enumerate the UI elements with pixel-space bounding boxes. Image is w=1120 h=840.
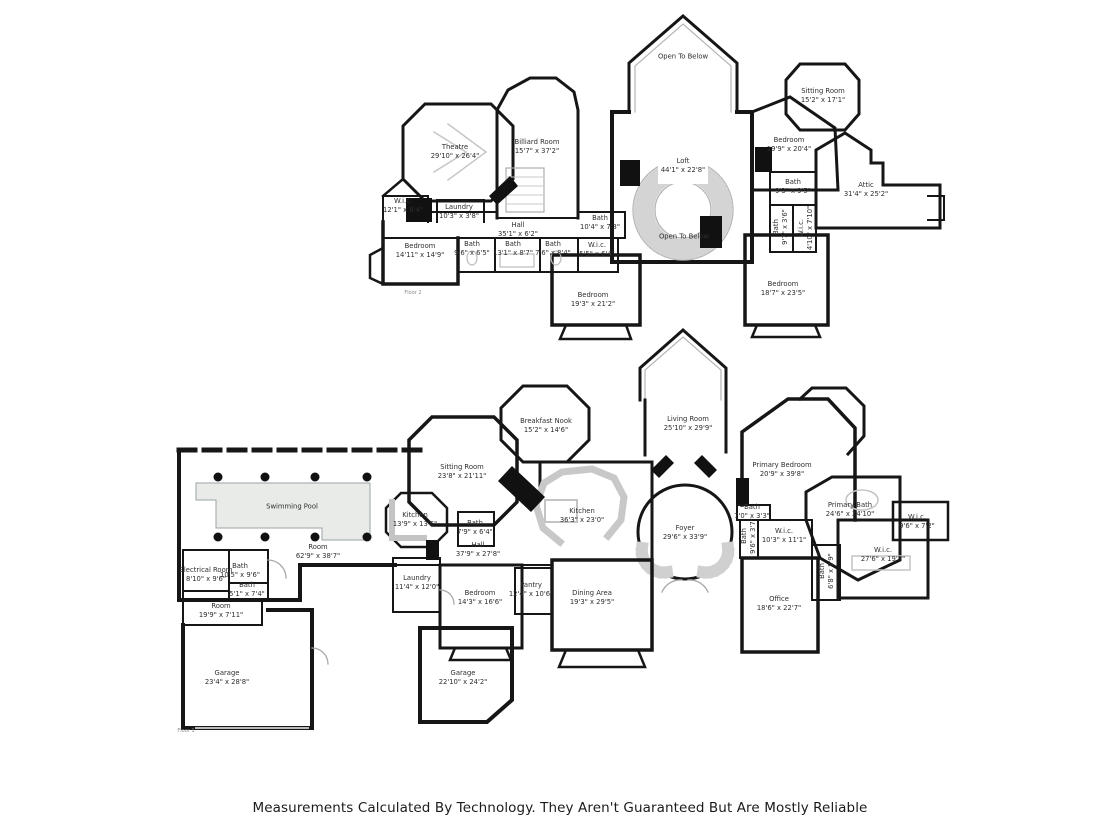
room-label-wic-primary-2: W.i.c.9'6" x 7'2" — [899, 513, 935, 531]
room-label-bath-f2-ne: Bath9'3" x 9'5" — [775, 178, 811, 196]
floor1-tag: Floor 1 — [177, 728, 194, 734]
room-label-sitting-room-f1: Sitting Room23'8" x 21'11" — [438, 463, 487, 481]
room-label-bath-f2-mid: Bath10'4" x 7'3" — [580, 214, 620, 232]
room-label-sitting-room-f2: Sitting Room15'2" x 17'1" — [801, 87, 845, 105]
room-label-theatre: Theatre29'10" x 26'4" — [431, 143, 480, 161]
floorplan-page: Open To Below Sitting Room15'2" x 17'1" … — [0, 0, 1120, 840]
room-label-living-room: Living Room25'10" x 29'9" — [664, 415, 713, 433]
room-label-hall-f1: Hall37'9" x 27'8" — [456, 541, 500, 559]
room-label-bath-vertical-1: Bath9'6" x 3'7" — [740, 518, 758, 554]
room-label-foyer: Foyer29'6" x 33'9" — [663, 524, 707, 542]
room-label-dining-area: Dining Area19'3" x 29'5" — [570, 589, 614, 607]
room-label-bath-w1: Bath10'5" x 9'6" — [220, 562, 260, 580]
room-label-hall-f2: Hall35'1" x 6'2" — [498, 221, 538, 239]
room-label-attic: Attic31'4" x 25'2" — [844, 181, 888, 199]
room-label-wic-f2-vertical: W.i.c.4'10" x 7'10" — [797, 206, 815, 250]
room-label-bedroom-f2-ne: Bedroom19'9" x 20'4" — [767, 136, 811, 154]
room-label-garage-right: Garage22'10" x 24'2" — [439, 669, 488, 687]
room-label-wic-primary-1: W.i.c.10'3" x 11'1" — [762, 527, 806, 545]
room-label-bedroom-f1: Bedroom14'3" x 16'6" — [458, 589, 502, 607]
room-label-laundry-f1: Laundry11'4" x 12'0" — [395, 574, 439, 592]
room-label-pantry: Pantry12'4" x 10'6" — [509, 581, 553, 599]
room-label-laundry-f2: Laundry10'3" x 3'8" — [439, 203, 479, 221]
room-label-bath-f2-3: Bath7'6" x 8'4" — [535, 240, 571, 258]
room-label-office: Office18'6" x 22'7" — [757, 595, 801, 613]
room-label-bedroom-f2-s: Bedroom19'3" x 21'2" — [571, 291, 615, 309]
room-label-loft: Loft44'1" x 22'8" — [661, 157, 705, 175]
room-label-bath-vertical-2: Bath6'8" x 8'9" — [818, 553, 836, 589]
room-label-bath-f2-2: Bath13'1" x 8'7" — [493, 240, 533, 258]
disclaimer-text: Measurements Calculated By Technology. T… — [0, 800, 1120, 816]
room-label-primary-bedroom: Primary Bedroom20'9" x 39'8" — [752, 461, 811, 479]
room-label-bath-f2-1: Bath9'6" x 6'5" — [454, 240, 490, 258]
room-label-room-small: Room19'9" x 7'11" — [199, 602, 243, 620]
room-label-swimming-pool: Swimming Pool — [266, 503, 318, 512]
floor2-tag: Floor 2 — [404, 290, 421, 296]
room-label-kitchen-main: Kitchen36'3" x 23'0" — [560, 507, 604, 525]
room-label-open-to-below-upper: Open To Below — [658, 53, 708, 62]
room-label-open-to-below-lower: Open To Below — [659, 233, 709, 242]
room-label-garage-left: Garage23'4" x 28'8" — [205, 669, 249, 687]
room-label-breakfast-nook: Breakfast Nook15'2" x 14'6" — [520, 417, 572, 435]
room-label-primary-bath: Primary Bath24'6" x 24'10" — [826, 501, 875, 519]
room-label-billiard-room: Billiard Room15'7" x 37'2" — [515, 138, 560, 156]
room-label-bedroom-f2-sw: Bedroom14'11" x 14'9" — [396, 242, 445, 260]
room-label-bath-f2-vertical: Bath9'7" x 3'6" — [772, 209, 790, 245]
room-label-wic-f2-west: W.i.c.12'1" x 8'4" — [383, 197, 423, 215]
room-label-kitchen-small: Kitchen13'9" x 13'6" — [393, 511, 437, 529]
room-label-bath-w2: Bath5'1" x 7'4" — [229, 581, 265, 599]
room-label-room-pool: Room62'9" x 38'7" — [296, 543, 340, 561]
room-label-wic-f2-mid: W.i.c.5'5" x 6'4" — [579, 241, 615, 259]
room-label-bedroom-f2-se: Bedroom18'7" x 23'5" — [761, 280, 805, 298]
room-label-wic-large: W.i.c.27'6" x 19'7" — [861, 546, 905, 564]
room-label-bath-hall: Bath7'9" x 6'4" — [457, 519, 493, 537]
